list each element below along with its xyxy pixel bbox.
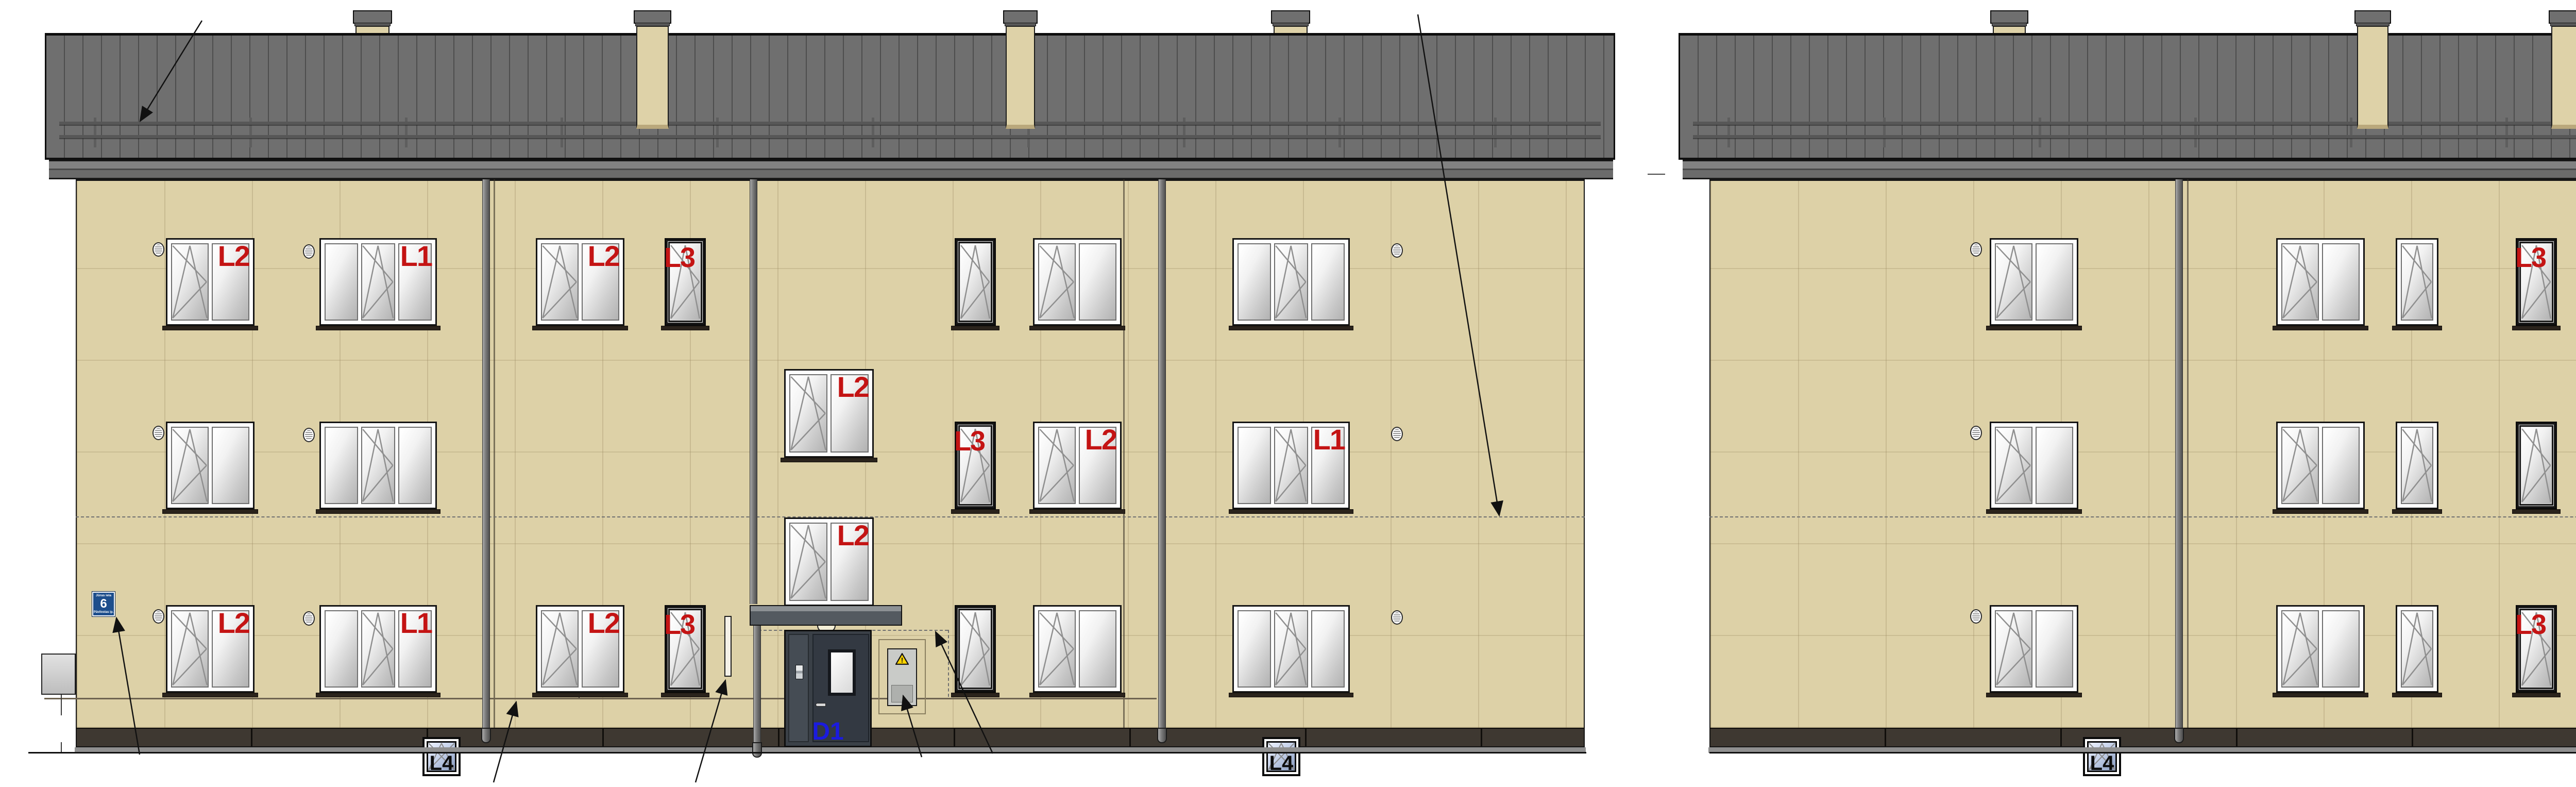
basement-window: L4	[422, 737, 461, 776]
snow-guard-rail	[1693, 122, 2576, 125]
tilt-turn-pane	[2281, 243, 2319, 321]
window-body	[958, 241, 993, 323]
basement-window-label: L4	[1268, 753, 1295, 774]
window-L2: L2	[784, 369, 874, 458]
window-type-label: L3	[664, 611, 694, 639]
window-win2	[166, 422, 255, 509]
plinth	[1709, 728, 2576, 747]
downpipe	[2175, 179, 2183, 728]
tilt-turn-pane	[789, 374, 827, 453]
vent-grille-icon	[303, 244, 315, 259]
vent-grille-icon	[152, 426, 164, 440]
tilt-turn-pane	[789, 523, 827, 601]
facade-conduit	[44, 698, 1157, 699]
window-sill	[2512, 509, 2561, 514]
tilt-turn-pane	[960, 610, 991, 688]
fixed-pane	[1079, 243, 1116, 321]
tilt-turn-pane	[2401, 610, 2433, 688]
chimney	[1006, 26, 1035, 129]
window-type-label: L2	[218, 242, 249, 271]
vent-grille-icon	[1970, 242, 1982, 257]
window-sill	[532, 693, 628, 697]
window-type-label: L2	[837, 373, 869, 401]
window-winNd	[2516, 422, 2557, 509]
window-winN	[2396, 422, 2438, 509]
window-sill	[1229, 693, 1353, 697]
downpipe-outlet	[752, 742, 762, 758]
window-type-label: L3	[954, 427, 985, 455]
facade-joint	[494, 179, 495, 747]
tilt-turn-pane	[541, 610, 579, 688]
address-number: 6	[100, 598, 107, 610]
window-sill	[1986, 693, 2082, 697]
window-type-label: L3	[664, 244, 694, 272]
window-winNd	[955, 238, 996, 326]
tilt-turn-pane	[1038, 243, 1076, 321]
tilt-turn-pane	[361, 427, 395, 504]
fixed-pane	[1238, 610, 1271, 688]
window-L1: L1	[319, 238, 437, 326]
floor-reference-dashed-line	[1709, 516, 2576, 517]
vent-grille-icon	[152, 242, 164, 257]
chimney-cap	[1271, 10, 1310, 24]
fixed-pane	[2322, 427, 2360, 504]
fixed-pane	[1311, 243, 1345, 321]
window-win2	[1990, 422, 2078, 509]
window-body	[1993, 609, 2075, 689]
tilt-turn-pane	[1274, 427, 1308, 504]
fixed-pane	[212, 427, 249, 504]
window-sill	[781, 458, 877, 462]
utility-corner-box	[41, 654, 76, 695]
window-body	[1037, 242, 1118, 322]
tilt-turn-pane	[1995, 243, 2032, 321]
fixed-pane	[2036, 243, 2073, 321]
basement-window-glass: L4	[1266, 741, 1296, 772]
window-sill	[2273, 693, 2368, 697]
fixed-pane	[325, 427, 358, 504]
window-type-label: L2	[1085, 425, 1116, 454]
window-sill	[2392, 509, 2442, 514]
reference-tick	[61, 695, 62, 715]
window-sill	[2273, 509, 2368, 514]
window-L2: L2	[166, 238, 255, 326]
vent-grille-icon	[303, 611, 315, 626]
window-sill	[1229, 326, 1353, 330]
window-L1: L1	[319, 605, 437, 693]
electrical-box-lower-panel	[891, 685, 913, 702]
chimney-cap	[1003, 10, 1038, 24]
tilt-turn-pane	[1274, 243, 1308, 321]
window-body	[2399, 425, 2435, 506]
basement-window-label: L4	[2089, 753, 2115, 774]
window-body	[1993, 242, 2075, 322]
window-win2	[1990, 238, 2078, 326]
fixed-pane	[2036, 610, 2073, 688]
window-L1: L1	[1232, 422, 1350, 509]
tilt-turn-pane	[361, 610, 395, 688]
window-body	[1236, 609, 1346, 689]
window-sill	[661, 326, 709, 330]
window-L3: L3	[2516, 238, 2557, 326]
window-win3	[1232, 605, 1350, 693]
vent-grille-icon	[303, 428, 315, 442]
window-win2	[1033, 238, 1122, 326]
window-body	[1037, 609, 1118, 689]
window-win2	[1990, 605, 2078, 693]
chimney-cap	[353, 10, 392, 24]
tilt-turn-pane	[1274, 610, 1308, 688]
vent-grille-icon	[1391, 610, 1403, 625]
address-bottom-text: Pāvilostas ip.	[94, 611, 113, 614]
vent-grille-icon	[1391, 427, 1403, 441]
eave-gutter	[49, 160, 1613, 179]
window-win3	[319, 422, 437, 509]
downpipe	[753, 626, 761, 742]
fixed-pane	[2322, 610, 2360, 688]
basement-window-glass: L4	[427, 741, 456, 772]
fixed-pane	[2036, 427, 2073, 504]
window-sill	[162, 509, 258, 514]
window-win2	[2276, 605, 2365, 693]
tilt-turn-pane	[1038, 427, 1076, 504]
window-L2: L2	[784, 517, 874, 606]
left-building-roof	[45, 33, 1615, 160]
vent-grille-icon	[1970, 426, 1982, 440]
window-body	[2280, 609, 2361, 689]
snow-guard-rail	[59, 135, 1601, 138]
window-sill	[1029, 326, 1125, 330]
snow-guard-rail	[1693, 135, 2576, 138]
window-win3	[1232, 238, 1350, 326]
downpipe-outlet	[2174, 728, 2184, 743]
fixed-pane	[325, 610, 358, 688]
window-body	[170, 425, 251, 506]
basement-window-label: L4	[428, 753, 455, 774]
window-sill	[951, 693, 999, 697]
downpipe	[482, 179, 490, 728]
window-winN	[2396, 238, 2438, 326]
chimney	[2357, 26, 2388, 129]
window-winN	[2396, 605, 2438, 693]
basement-window: L4	[2083, 737, 2121, 776]
tilt-turn-pane	[2401, 427, 2433, 504]
chimney	[2551, 26, 2576, 129]
window-sill	[951, 326, 999, 330]
window-sill	[162, 693, 258, 697]
window-body	[2399, 609, 2435, 689]
fixed-pane	[1079, 610, 1116, 688]
chimney-cap	[2354, 10, 2391, 24]
intercom-panel	[795, 665, 803, 679]
right-building-roof	[1679, 33, 2576, 160]
window-body	[2399, 242, 2435, 322]
window-win2	[2276, 422, 2365, 509]
downpipe	[1158, 179, 1166, 728]
window-sill	[2273, 326, 2368, 330]
right-building-wall	[1709, 179, 2576, 728]
window-L3: L3	[2516, 605, 2557, 693]
basement-window-glass: L4	[2087, 741, 2117, 772]
window-L3: L3	[665, 605, 706, 693]
window-L3: L3	[955, 422, 996, 509]
reference-dashed-line-vertical	[948, 630, 949, 697]
tilt-turn-pane	[1995, 427, 2032, 504]
snow-guard-rail	[59, 122, 1601, 125]
window-L3: L3	[665, 238, 706, 326]
window-type-label: L1	[400, 242, 432, 271]
door-handle	[816, 703, 826, 707]
elevation-drawing: Jūras iela 6 Pāvilostas ip. D1 L4L4L2L1L…	[0, 0, 2576, 787]
window-type-label: L2	[588, 242, 619, 271]
basement-window: L4	[1262, 737, 1300, 776]
window-sill	[1986, 326, 2082, 330]
chimney-cap	[634, 10, 671, 24]
window-type-label: L2	[837, 521, 869, 550]
window-sill	[532, 326, 628, 330]
vent-grille-icon	[1391, 243, 1403, 258]
window-winNd	[955, 605, 996, 693]
window-sill	[1986, 509, 2082, 514]
tilt-turn-pane	[171, 610, 209, 688]
fixed-pane	[1311, 610, 1345, 688]
reference-tick	[61, 742, 62, 752]
window-type-label: L1	[400, 609, 432, 638]
chimney-cap	[1990, 10, 2028, 24]
window-type-label: L3	[2515, 611, 2546, 639]
window-body	[323, 425, 433, 506]
tilt-turn-pane	[2281, 427, 2319, 504]
chimney	[636, 26, 669, 129]
window-sill	[1029, 693, 1125, 697]
tilt-turn-pane	[2281, 610, 2319, 688]
tilt-turn-pane	[1038, 610, 1076, 688]
window-sill	[316, 326, 440, 330]
window-type-label: L2	[218, 609, 249, 638]
ground-line	[28, 752, 1586, 753]
window-sill	[316, 693, 440, 697]
window-sill	[1229, 509, 1353, 514]
downpipe	[750, 179, 757, 604]
tilt-turn-pane	[960, 243, 991, 321]
door-glass	[828, 649, 856, 696]
tilt-turn-pane	[2401, 243, 2433, 321]
window-body	[1236, 242, 1346, 322]
fixed-pane	[325, 243, 358, 321]
window-L2: L2	[536, 238, 624, 326]
tilt-turn-pane	[361, 243, 395, 321]
fixed-pane	[398, 427, 432, 504]
downpipe-outlet	[1157, 728, 1167, 743]
window-type-label: L2	[588, 609, 619, 638]
window-win2	[1033, 605, 1122, 693]
chimney-cap	[2549, 10, 2576, 24]
door-label: D1	[785, 717, 871, 746]
window-type-label: L3	[2515, 244, 2546, 272]
tilt-turn-pane	[171, 243, 209, 321]
address-sign: Jūras iela 6 Pāvilostas ip.	[92, 591, 115, 617]
entrance-canopy	[750, 605, 902, 626]
tilt-turn-pane	[2521, 427, 2552, 504]
window-sill	[2392, 693, 2442, 697]
window-sill	[2512, 693, 2561, 697]
window-sill	[951, 509, 999, 514]
window-win2	[2276, 238, 2365, 326]
vent-grille-icon	[152, 609, 164, 624]
ground-line	[1709, 752, 2576, 753]
window-body	[958, 608, 993, 690]
window-sill	[316, 509, 440, 514]
wall-device	[724, 616, 732, 677]
window-body	[1993, 425, 2075, 506]
window-sill	[2512, 326, 2561, 330]
eave-gutter	[1683, 160, 2576, 179]
vent-grille-icon	[1970, 609, 1982, 624]
fixed-pane	[2322, 243, 2360, 321]
window-body	[2280, 242, 2361, 322]
electrical-box: !	[887, 648, 917, 706]
window-body	[2280, 425, 2361, 506]
fixed-pane	[1238, 243, 1271, 321]
window-L2: L2	[536, 605, 624, 693]
window-sill	[661, 693, 709, 697]
facade-joint	[1123, 179, 1125, 747]
window-L2: L2	[166, 605, 255, 693]
reference-tick	[1648, 174, 1665, 175]
fixed-pane	[1238, 427, 1271, 504]
tilt-turn-pane	[171, 427, 209, 504]
window-L2: L2	[1033, 422, 1122, 509]
window-sill	[162, 326, 258, 330]
window-sill	[1029, 509, 1125, 514]
downpipe-outlet	[481, 728, 491, 743]
facade-joint	[2187, 179, 2189, 747]
tilt-turn-pane	[541, 243, 579, 321]
svg-text:!: !	[901, 656, 904, 664]
window-body	[2519, 425, 2554, 506]
window-sill	[2392, 326, 2442, 330]
warning-triangle-icon: !	[895, 653, 909, 665]
tilt-turn-pane	[1995, 610, 2032, 688]
window-type-label: L1	[1313, 425, 1345, 454]
